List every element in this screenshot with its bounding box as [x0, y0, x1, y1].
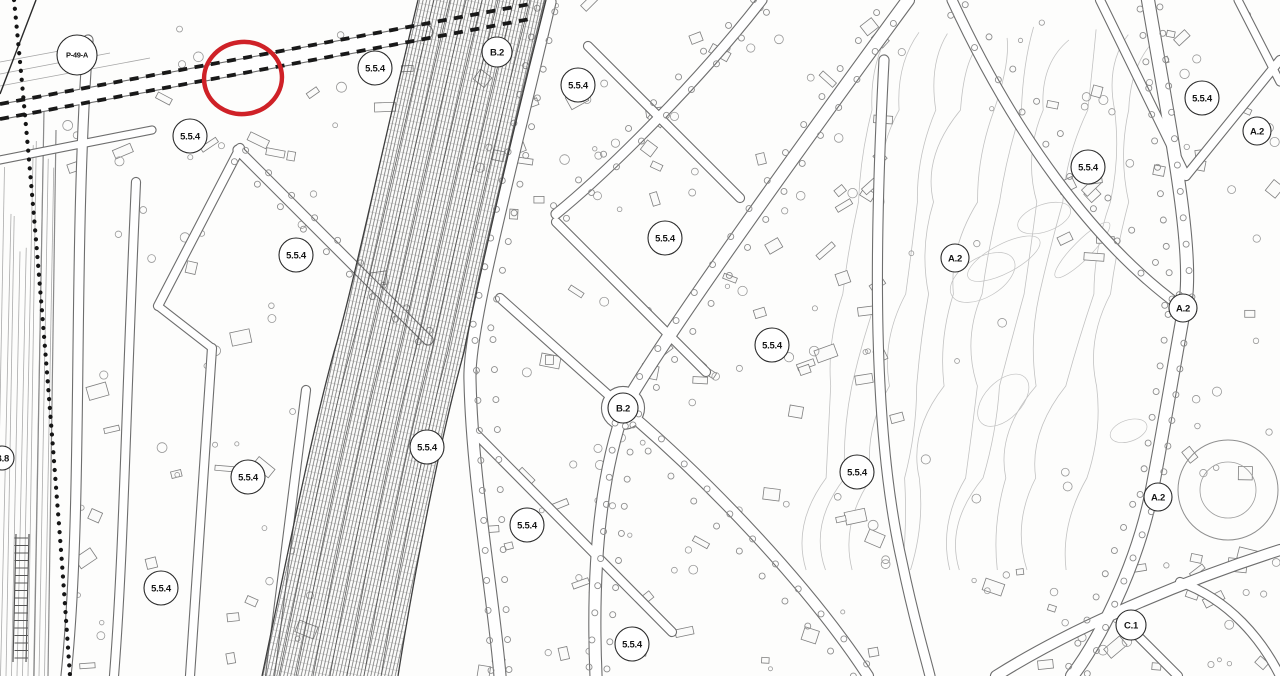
zone-label-text: A.2 — [1176, 303, 1190, 314]
zone-label: A.2 — [941, 244, 969, 272]
zone-label-text: B.2 — [616, 403, 630, 414]
zone-label-text: 5.5.4 — [568, 80, 589, 91]
zone-label-text: 5.5.4 — [151, 583, 172, 594]
zone-label-text: B.8 — [0, 453, 9, 464]
zone-label-text: 5.5.4 — [847, 467, 868, 478]
zone-label: B.2 — [482, 37, 512, 67]
zone-label: 5.5.4 — [173, 119, 207, 153]
zone-label: C.1 — [1116, 610, 1146, 640]
zone-label: 5.5.4 — [840, 455, 874, 489]
zone-label: 5.5.4 — [1185, 81, 1219, 115]
zone-label-text: 5.5.4 — [1078, 162, 1099, 173]
zone-label-text: 5.5.4 — [238, 472, 259, 483]
zone-label: 5.5.4 — [648, 221, 682, 255]
zone-label: 5.5.4 — [358, 51, 392, 85]
zoning-map: P-49-A5.5.45.5.45.5.4B.25.5.45.5.45.5.4B… — [0, 0, 1280, 676]
zone-label: 5.5.4 — [279, 238, 313, 272]
zone-label: 5.5.4 — [410, 430, 444, 464]
zone-label-text: P-49-A — [66, 51, 89, 60]
zone-label-text: A.2 — [1250, 126, 1264, 137]
zone-label: 5.5.4 — [1071, 150, 1105, 184]
zone-label: P-49-A — [57, 35, 97, 75]
zone-label-text: 5.5.4 — [365, 63, 386, 74]
zone-label-text: A.2 — [1151, 492, 1165, 503]
zone-label-text: 5.5.4 — [622, 639, 643, 650]
zone-label: A.2 — [1243, 117, 1271, 145]
zone-label-text: 5.5.4 — [417, 442, 438, 453]
zone-label: 5.5.4 — [561, 68, 595, 102]
zone-label-text: 5.5.4 — [180, 131, 201, 142]
zone-label: 5.5.4 — [755, 328, 789, 362]
zone-label: A.2 — [1144, 483, 1172, 511]
zone-label: 5.5.4 — [615, 627, 649, 661]
zone-label-text: A.2 — [948, 253, 962, 264]
zone-label: B.2 — [608, 393, 638, 423]
zone-label-text: 5.5.4 — [655, 233, 676, 244]
zone-label: 5.5.4 — [510, 508, 544, 542]
track-ladder — [13, 534, 29, 662]
map-image: P-49-A5.5.45.5.45.5.4B.25.5.45.5.45.5.4B… — [0, 0, 1280, 676]
zone-label-text: 5.5.4 — [1192, 93, 1213, 104]
zone-label-text: 5.5.4 — [517, 520, 538, 531]
zone-label-text: C.1 — [1124, 620, 1139, 631]
zone-label-text: 5.5.4 — [762, 340, 783, 351]
zone-label: A.2 — [1169, 294, 1197, 322]
zone-label-text: 5.5.4 — [286, 250, 307, 261]
zone-label: 5.5.4 — [231, 460, 265, 494]
zone-label-text: B.2 — [490, 47, 504, 58]
zone-label: 5.5.4 — [144, 571, 178, 605]
